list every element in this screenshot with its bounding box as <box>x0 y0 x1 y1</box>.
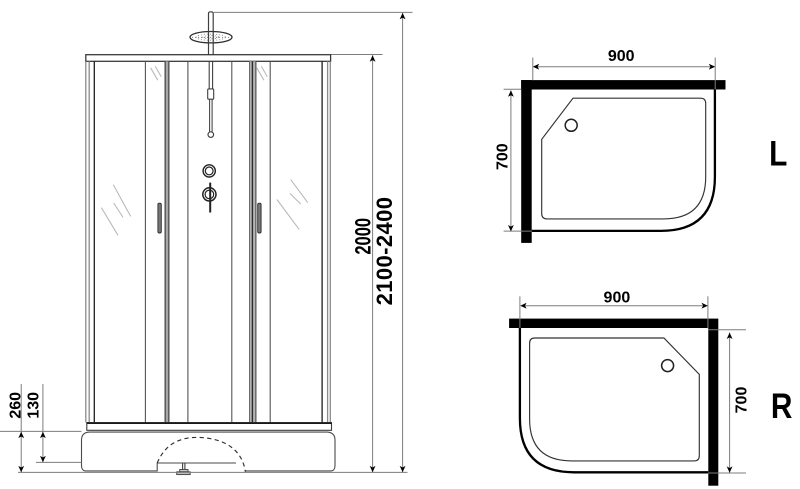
svg-text:2100-2400: 2100-2400 <box>372 197 397 306</box>
svg-text:900: 900 <box>608 48 635 65</box>
svg-text:900: 900 <box>604 289 631 306</box>
svg-text:700: 700 <box>494 143 511 170</box>
svg-text:L: L <box>769 133 787 173</box>
svg-text:R: R <box>771 385 793 425</box>
svg-text:260: 260 <box>8 392 25 419</box>
svg-text:700: 700 <box>734 387 751 414</box>
svg-text:130: 130 <box>26 392 43 419</box>
